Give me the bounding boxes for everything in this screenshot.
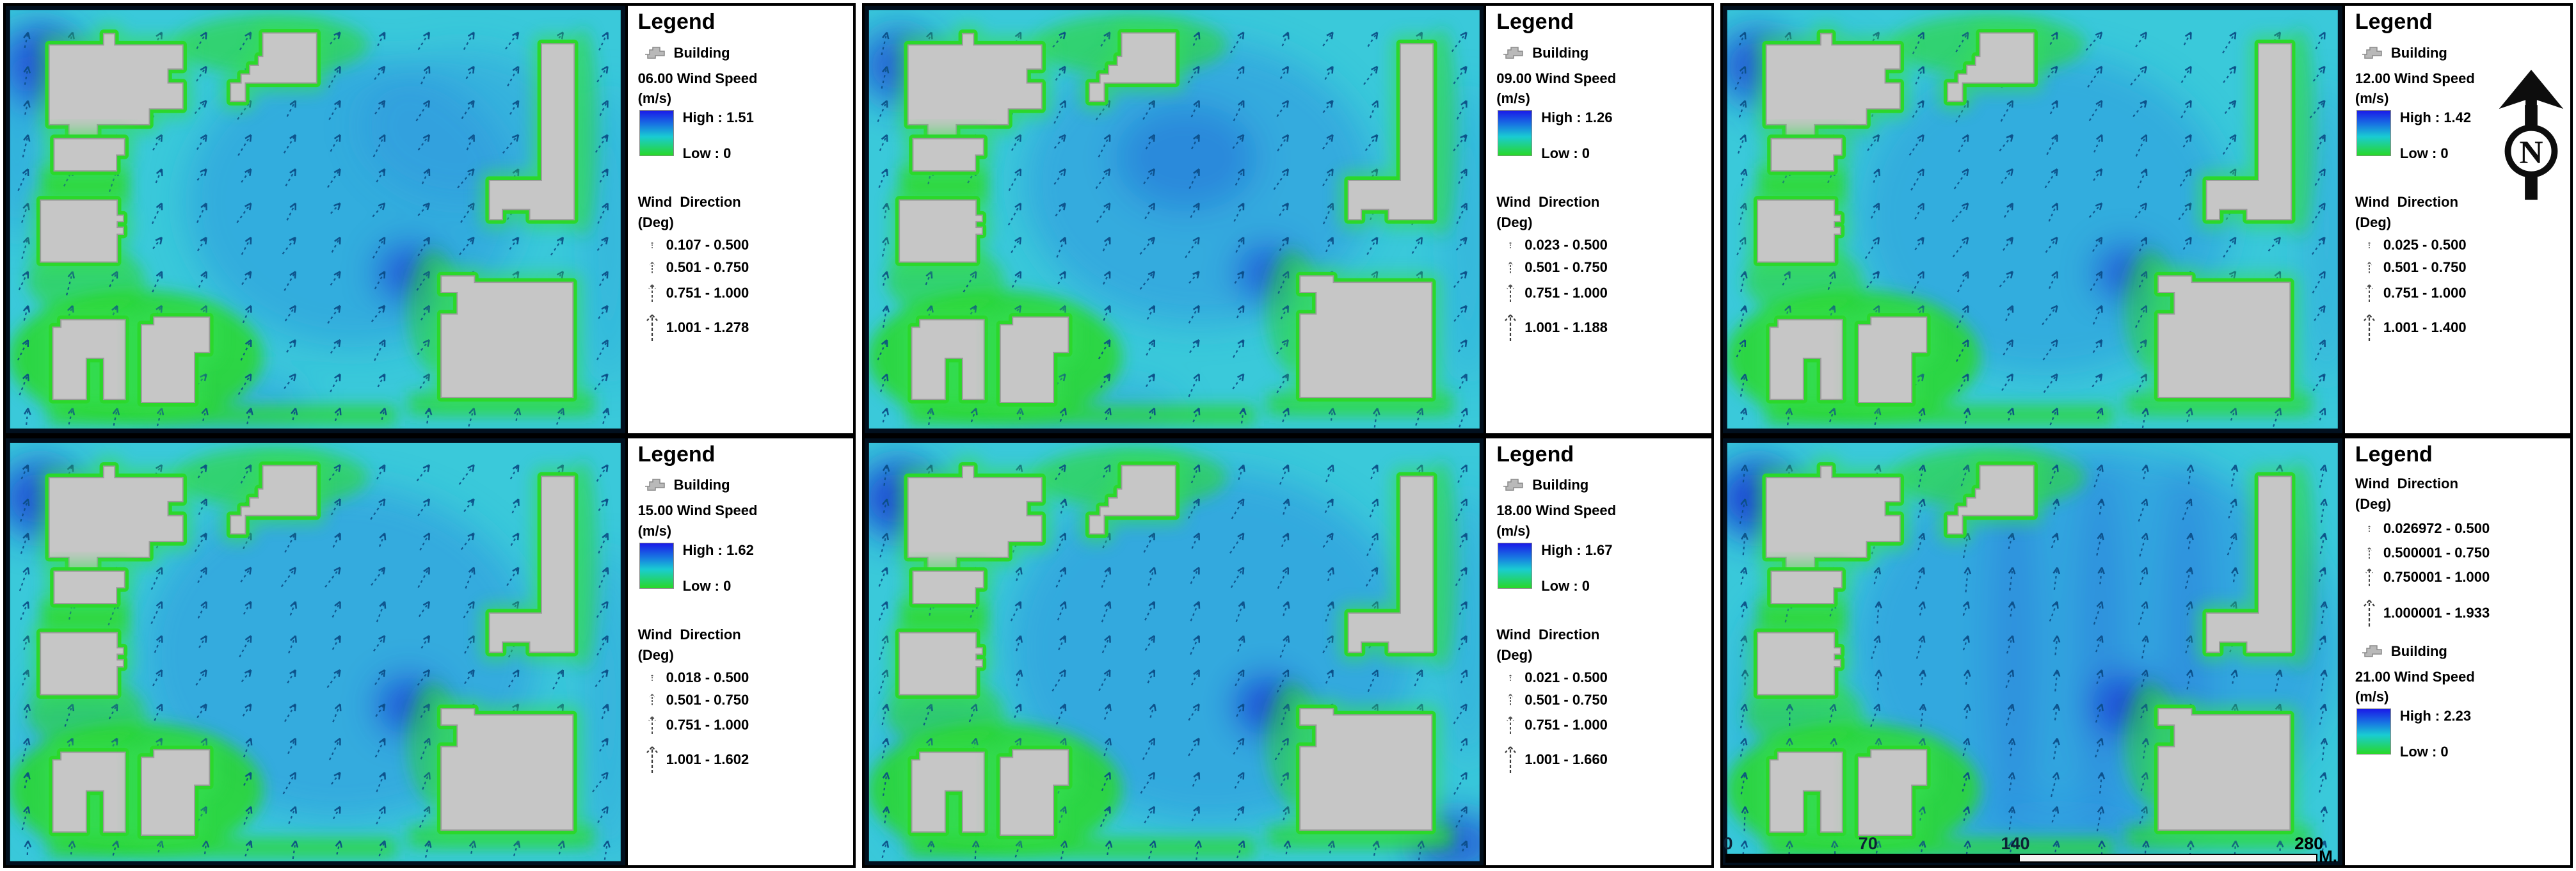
direction-range-row: 1.001 - 1.188 (1496, 314, 1708, 342)
direction-arrow-icon-large (1496, 284, 1524, 303)
direction-range-row: 0.501 - 0.750 (638, 690, 849, 710)
map-legend: Legend Building 21.00 Wind Speed (m/s) H… (2345, 438, 2570, 866)
ramp-high-low-labels: High : 1.67 Low : 0 (1541, 543, 1612, 589)
building-icon (1503, 46, 1524, 60)
legend-title: Legend (2355, 443, 2566, 467)
legend-title: Legend (1496, 11, 1708, 34)
legend-wind-direction-section: Wind Direction (Deg) 0.025 - 0.500 0.501… (2355, 192, 2566, 343)
ramp-low-label: Low : 0 (1541, 579, 1612, 594)
direction-range-row: 0.751 - 1.000 (1496, 715, 1708, 735)
direction-arrow-icon-medium (1496, 261, 1524, 274)
direction-arrow-icon-large (1496, 715, 1524, 735)
wind-speed-color-ramp-row: High : 1.67 Low : 0 (1498, 543, 1708, 589)
wind-speed-unit-label: (m/s) (638, 88, 849, 109)
wind-field-map (6, 6, 628, 433)
ramp-high-label: High : 1.67 (1541, 543, 1612, 558)
direction-range-label: 1.001 - 1.602 (666, 749, 749, 770)
wind-map-panel-0900: Legend Building 09.00 Wind Speed (m/s) H… (862, 3, 1715, 436)
direction-arrow-icon-large (2355, 568, 2383, 587)
wind-speed-color-ramp (1498, 110, 1532, 156)
direction-range-label: 0.026972 - 0.500 (2383, 518, 2490, 539)
legend-building-entry: Building (2362, 641, 2566, 662)
direction-arrow-icon-medium (2355, 261, 2383, 274)
direction-arrow-icon-large (2355, 284, 2383, 303)
wind-speed-time-label: 21.00 Wind Speed (2355, 667, 2566, 687)
wind-speed-unit-label: (m/s) (2355, 687, 2566, 707)
direction-range-label: 0.501 - 0.750 (666, 257, 749, 278)
wind-field-svg (1723, 6, 2342, 433)
legend-building-entry: Building (1503, 43, 1708, 63)
legend-wind-speed-section: 21.00 Wind Speed (m/s) High : 2.23 Low :… (2355, 667, 2566, 755)
legend-building-entry: Building (1503, 475, 1708, 495)
wind-direction-unit-label: (Deg) (1496, 212, 1708, 233)
building-icon (2362, 46, 2383, 60)
wind-direction-label: Wind Direction (638, 192, 849, 212)
direction-range-row: 1.001 - 1.660 (1496, 746, 1708, 774)
direction-range-row: 0.501 - 0.750 (1496, 257, 1708, 278)
direction-range-label: 0.018 - 0.500 (666, 667, 749, 688)
direction-range-label: 0.751 - 1.000 (666, 283, 749, 303)
ramp-low-label: Low : 0 (2400, 146, 2471, 161)
building-label: Building (1532, 475, 1588, 495)
direction-range-row: 1.001 - 1.400 (2355, 314, 2566, 342)
building-label: Building (2391, 641, 2447, 662)
wind-field-svg (865, 6, 1484, 433)
ramp-high-low-labels: High : 1.62 Low : 0 (683, 543, 754, 589)
wind-simulation-figure: Legend Building 06.00 Wind Speed (m/s) H… (0, 0, 2576, 871)
direction-arrow-icon-xlarge (2355, 599, 2383, 627)
direction-range-label: 1.001 - 1.660 (1524, 749, 1608, 770)
direction-range-row: 0.501 - 0.750 (638, 257, 849, 278)
ramp-low-label: Low : 0 (2400, 744, 2471, 760)
direction-arrow-icon-small (1496, 241, 1524, 249)
wind-speed-color-ramp-row: High : 1.51 Low : 0 (639, 110, 849, 156)
direction-range-label: 1.001 - 1.278 (666, 317, 749, 338)
ramp-high-low-labels: High : 1.42 Low : 0 (2400, 110, 2471, 156)
north-letter: N (2519, 134, 2543, 171)
wind-map-panel-2100: 0 70 140 280 M. Legend Building 21.00 (1720, 436, 2573, 868)
building-label: Building (1532, 43, 1588, 63)
building-icon (644, 478, 666, 492)
direction-range-label: 0.107 - 0.500 (666, 235, 749, 255)
wind-field-map (865, 438, 1487, 866)
direction-range-label: 0.751 - 1.000 (1524, 715, 1608, 735)
ramp-high-low-labels: High : 1.26 Low : 0 (1541, 110, 1612, 156)
direction-range-label: 1.001 - 1.400 (2383, 317, 2467, 338)
wind-direction-label: Wind Direction (1496, 192, 1708, 212)
wind-field-svg (865, 438, 1484, 866)
direction-arrow-icon-small (1496, 674, 1524, 682)
wind-direction-unit-label: (Deg) (1496, 645, 1708, 666)
map-legend: Legend Building 15.00 Wind Speed (m/s) H… (628, 438, 853, 866)
wind-speed-color-ramp (1498, 543, 1532, 589)
wind-field-map: 0 70 140 280 M. (1723, 438, 2345, 866)
legend-building-entry: Building (644, 43, 849, 63)
wind-map-panel-0600: Legend Building 06.00 Wind Speed (m/s) H… (3, 3, 856, 436)
direction-arrow-icon-small (638, 674, 666, 682)
direction-range-row: 0.751 - 1.000 (2355, 283, 2566, 303)
direction-range-row: 0.750001 - 1.000 (2355, 567, 2566, 587)
direction-arrow-icon-xlarge (1496, 314, 1524, 342)
wind-field-map (1723, 6, 2345, 433)
ramp-high-low-labels: High : 2.23 Low : 0 (2400, 708, 2471, 755)
legend-building-entry: Building (2362, 43, 2566, 63)
direction-arrow-icon-medium (638, 261, 666, 274)
direction-range-row: 1.001 - 1.278 (638, 314, 849, 342)
direction-arrow-icon-medium (1496, 693, 1524, 706)
direction-arrow-icon-medium (638, 693, 666, 706)
wind-speed-time-label: 15.00 Wind Speed (638, 500, 849, 521)
direction-arrow-icon-large (638, 284, 666, 303)
legend-wind-speed-section: 15.00 Wind Speed (m/s) High : 1.62 Low :… (638, 500, 849, 589)
wind-field-svg (1723, 438, 2342, 866)
direction-range-label: 0.501 - 0.750 (666, 690, 749, 710)
wind-speed-color-ramp (639, 543, 674, 589)
legend-wind-direction-section: Wind Direction (Deg) 0.018 - 0.500 0.501… (638, 625, 849, 776)
wind-direction-unit-label: (Deg) (638, 212, 849, 233)
direction-arrow-icon-large (638, 715, 666, 735)
wind-speed-color-ramp (639, 110, 674, 156)
wind-speed-time-label: 09.00 Wind Speed (1496, 68, 1708, 89)
direction-range-label: 1.001 - 1.188 (1524, 317, 1608, 338)
ramp-high-low-labels: High : 1.51 Low : 0 (683, 110, 754, 156)
wind-direction-unit-label: (Deg) (2355, 212, 2566, 233)
wind-speed-color-ramp-row: High : 1.26 Low : 0 (1498, 110, 1708, 156)
direction-range-label: 0.501 - 0.750 (1524, 690, 1608, 710)
north-arrow-head (2499, 70, 2564, 111)
direction-range-row: 0.025 - 0.500 (2355, 235, 2566, 255)
building-icon (644, 46, 666, 60)
direction-range-row: 0.107 - 0.500 (638, 235, 849, 255)
map-legend: Legend Building 18.00 Wind Speed (m/s) H… (1486, 438, 1711, 866)
direction-range-row: 1.001 - 1.602 (638, 746, 849, 774)
ramp-high-label: High : 1.51 (683, 110, 754, 125)
direction-range-label: 1.000001 - 1.933 (2383, 603, 2490, 623)
legend-wind-speed-section: 18.00 Wind Speed (m/s) High : 1.67 Low :… (1496, 500, 1708, 589)
wind-speed-unit-label: (m/s) (638, 521, 849, 541)
direction-range-row: 0.751 - 1.000 (638, 283, 849, 303)
building-icon (2362, 644, 2383, 659)
wind-field-map (865, 6, 1487, 433)
north-arrow: N (2493, 67, 2569, 203)
direction-range-row: 0.751 - 1.000 (638, 715, 849, 735)
wind-direction-label: Wind Direction (638, 625, 849, 645)
direction-range-row: 0.021 - 0.500 (1496, 667, 1708, 688)
wind-field-svg (6, 438, 625, 866)
legend-wind-direction-section: Wind Direction (Deg) 0.023 - 0.500 0.501… (1496, 192, 1708, 343)
building-icon (1503, 478, 1524, 492)
legend-wind-direction-section: Wind Direction (Deg) 0.107 - 0.500 0.501… (638, 192, 849, 343)
wind-map-panel-1800: Legend Building 18.00 Wind Speed (m/s) H… (862, 436, 1715, 868)
building-label: Building (674, 43, 730, 63)
direction-arrow-icon-small (638, 241, 666, 249)
wind-map-panel-1200: Legend Building 12.00 Wind Speed (m/s) H… (1720, 3, 2573, 436)
building-label: Building (674, 475, 730, 495)
legend-title: Legend (2355, 11, 2566, 34)
wind-direction-label: Wind Direction (2355, 474, 2566, 494)
direction-range-label: 0.751 - 1.000 (1524, 283, 1608, 303)
direction-range-label: 0.025 - 0.500 (2383, 235, 2467, 255)
wind-direction-unit-label: (Deg) (2355, 494, 2566, 515)
ramp-low-label: Low : 0 (683, 579, 754, 594)
wind-direction-label: Wind Direction (1496, 625, 1708, 645)
direction-range-label: 0.501 - 0.750 (1524, 257, 1608, 278)
direction-range-row: 0.501 - 0.750 (2355, 257, 2566, 278)
legend-title: Legend (638, 443, 849, 467)
wind-field-map (6, 438, 628, 866)
direction-range-label: 0.750001 - 1.000 (2383, 567, 2490, 587)
legend-wind-direction-section: Wind Direction (Deg) 0.026972 - 0.500 0.… (2355, 474, 2566, 630)
legend-title: Legend (638, 11, 849, 34)
direction-range-label: 0.021 - 0.500 (1524, 667, 1608, 688)
legend-title: Legend (1496, 443, 1708, 467)
direction-arrow-icon-small (2355, 241, 2383, 249)
direction-arrow-icon-xlarge (2355, 314, 2383, 342)
direction-range-row: 0.026972 - 0.500 (2355, 518, 2566, 539)
direction-arrow-icon-xlarge (1496, 746, 1524, 774)
direction-range-label: 0.500001 - 0.750 (2383, 543, 2490, 563)
direction-range-row: 0.501 - 0.750 (1496, 690, 1708, 710)
map-legend: Legend Building 09.00 Wind Speed (m/s) H… (1486, 6, 1711, 433)
ramp-low-label: Low : 0 (1541, 146, 1612, 161)
wind-speed-color-ramp-row: High : 1.62 Low : 0 (639, 543, 849, 589)
direction-range-label: 0.751 - 1.000 (666, 715, 749, 735)
direction-arrow-icon-xlarge (638, 314, 666, 342)
direction-arrow-icon-small (2355, 525, 2383, 532)
legend-wind-speed-section: 06.00 Wind Speed (m/s) High : 1.51 Low :… (638, 68, 849, 157)
direction-range-row: 0.751 - 1.000 (1496, 283, 1708, 303)
ramp-high-label: High : 1.42 (2400, 110, 2471, 125)
legend-wind-direction-section: Wind Direction (Deg) 0.021 - 0.500 0.501… (1496, 625, 1708, 776)
map-legend: Legend Building 12.00 Wind Speed (m/s) H… (2345, 6, 2570, 433)
wind-speed-color-ramp-row: High : 2.23 Low : 0 (2356, 708, 2566, 755)
direction-range-label: 0.023 - 0.500 (1524, 235, 1608, 255)
direction-range-row: 0.023 - 0.500 (1496, 235, 1708, 255)
direction-arrow-icon-medium (2355, 547, 2383, 559)
map-legend: Legend Building 06.00 Wind Speed (m/s) H… (628, 6, 853, 433)
wind-speed-time-label: 06.00 Wind Speed (638, 68, 849, 89)
wind-speed-time-label: 18.00 Wind Speed (1496, 500, 1708, 521)
direction-arrow-icon-xlarge (638, 746, 666, 774)
ramp-high-label: High : 1.26 (1541, 110, 1612, 125)
direction-range-row: 1.000001 - 1.933 (2355, 599, 2566, 627)
wind-speed-unit-label: (m/s) (1496, 88, 1708, 109)
direction-range-label: 0.751 - 1.000 (2383, 283, 2467, 303)
wind-direction-unit-label: (Deg) (638, 645, 849, 666)
wind-speed-color-ramp (2356, 708, 2391, 755)
wind-map-panel-1500: Legend Building 15.00 Wind Speed (m/s) H… (3, 436, 856, 868)
legend-building-entry: Building (644, 475, 849, 495)
ramp-high-label: High : 1.62 (683, 543, 754, 558)
ramp-low-label: Low : 0 (683, 146, 754, 161)
building-label: Building (2391, 43, 2447, 63)
wind-speed-unit-label: (m/s) (1496, 521, 1708, 541)
legend-wind-speed-section: 09.00 Wind Speed (m/s) High : 1.26 Low :… (1496, 68, 1708, 157)
direction-range-label: 0.501 - 0.750 (2383, 257, 2467, 278)
ramp-high-label: High : 2.23 (2400, 708, 2471, 724)
wind-speed-color-ramp (2356, 110, 2391, 156)
wind-field-svg (6, 6, 625, 433)
direction-range-row: 0.018 - 0.500 (638, 667, 849, 688)
direction-range-row: 0.500001 - 0.750 (2355, 543, 2566, 563)
